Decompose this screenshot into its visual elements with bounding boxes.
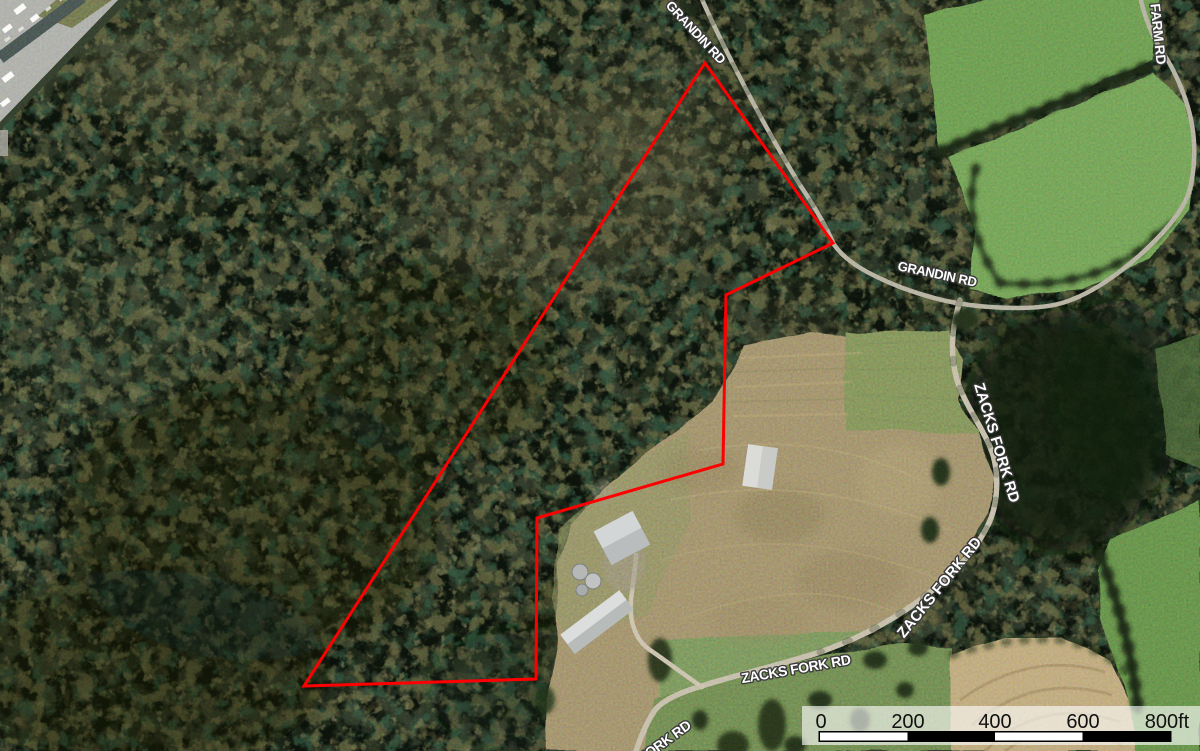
svg-text:0: 0 xyxy=(815,711,826,733)
svg-text:400: 400 xyxy=(978,711,1011,733)
svg-text:800ft: 800ft xyxy=(1145,711,1190,733)
svg-text:200: 200 xyxy=(891,711,924,733)
svg-text:600: 600 xyxy=(1066,711,1099,733)
